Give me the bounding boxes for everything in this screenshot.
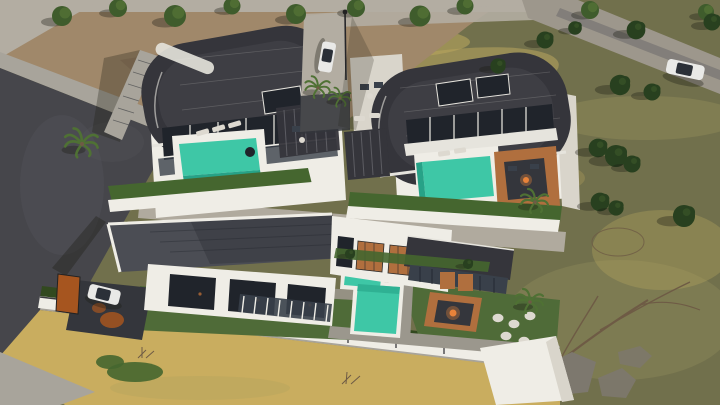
side-table [299,137,305,143]
pouf [501,332,512,340]
rust-plant [100,312,124,328]
fire-pit-lounge [424,292,482,332]
pouf [493,314,504,322]
parasol [245,147,255,157]
fire-pit [450,310,457,317]
ground-cover-bush [96,355,124,369]
pavilion-wood-door [440,272,455,289]
pouf [509,320,520,328]
interior-light [198,292,201,295]
roof-window [476,74,510,98]
pavilion-wood-door [458,274,473,291]
pool-water [422,156,494,202]
rust-entry-gate [56,274,80,314]
lounge-cushion [530,164,539,169]
window-wall [168,274,216,310]
sun-lounger [354,116,365,121]
pool-water [179,138,260,176]
lounge-cushion [508,166,517,171]
roof-window [436,79,473,106]
outdoor-table [367,93,373,99]
wood-deck-lounge [494,146,560,212]
render-viewport [0,0,720,405]
pergola-roof [344,128,390,180]
roof-shadow [190,214,344,264]
outdoor-sofa [374,82,383,88]
fire-pit [523,177,529,183]
sun-lounger [369,113,380,118]
aerial-villa-render [0,0,720,405]
